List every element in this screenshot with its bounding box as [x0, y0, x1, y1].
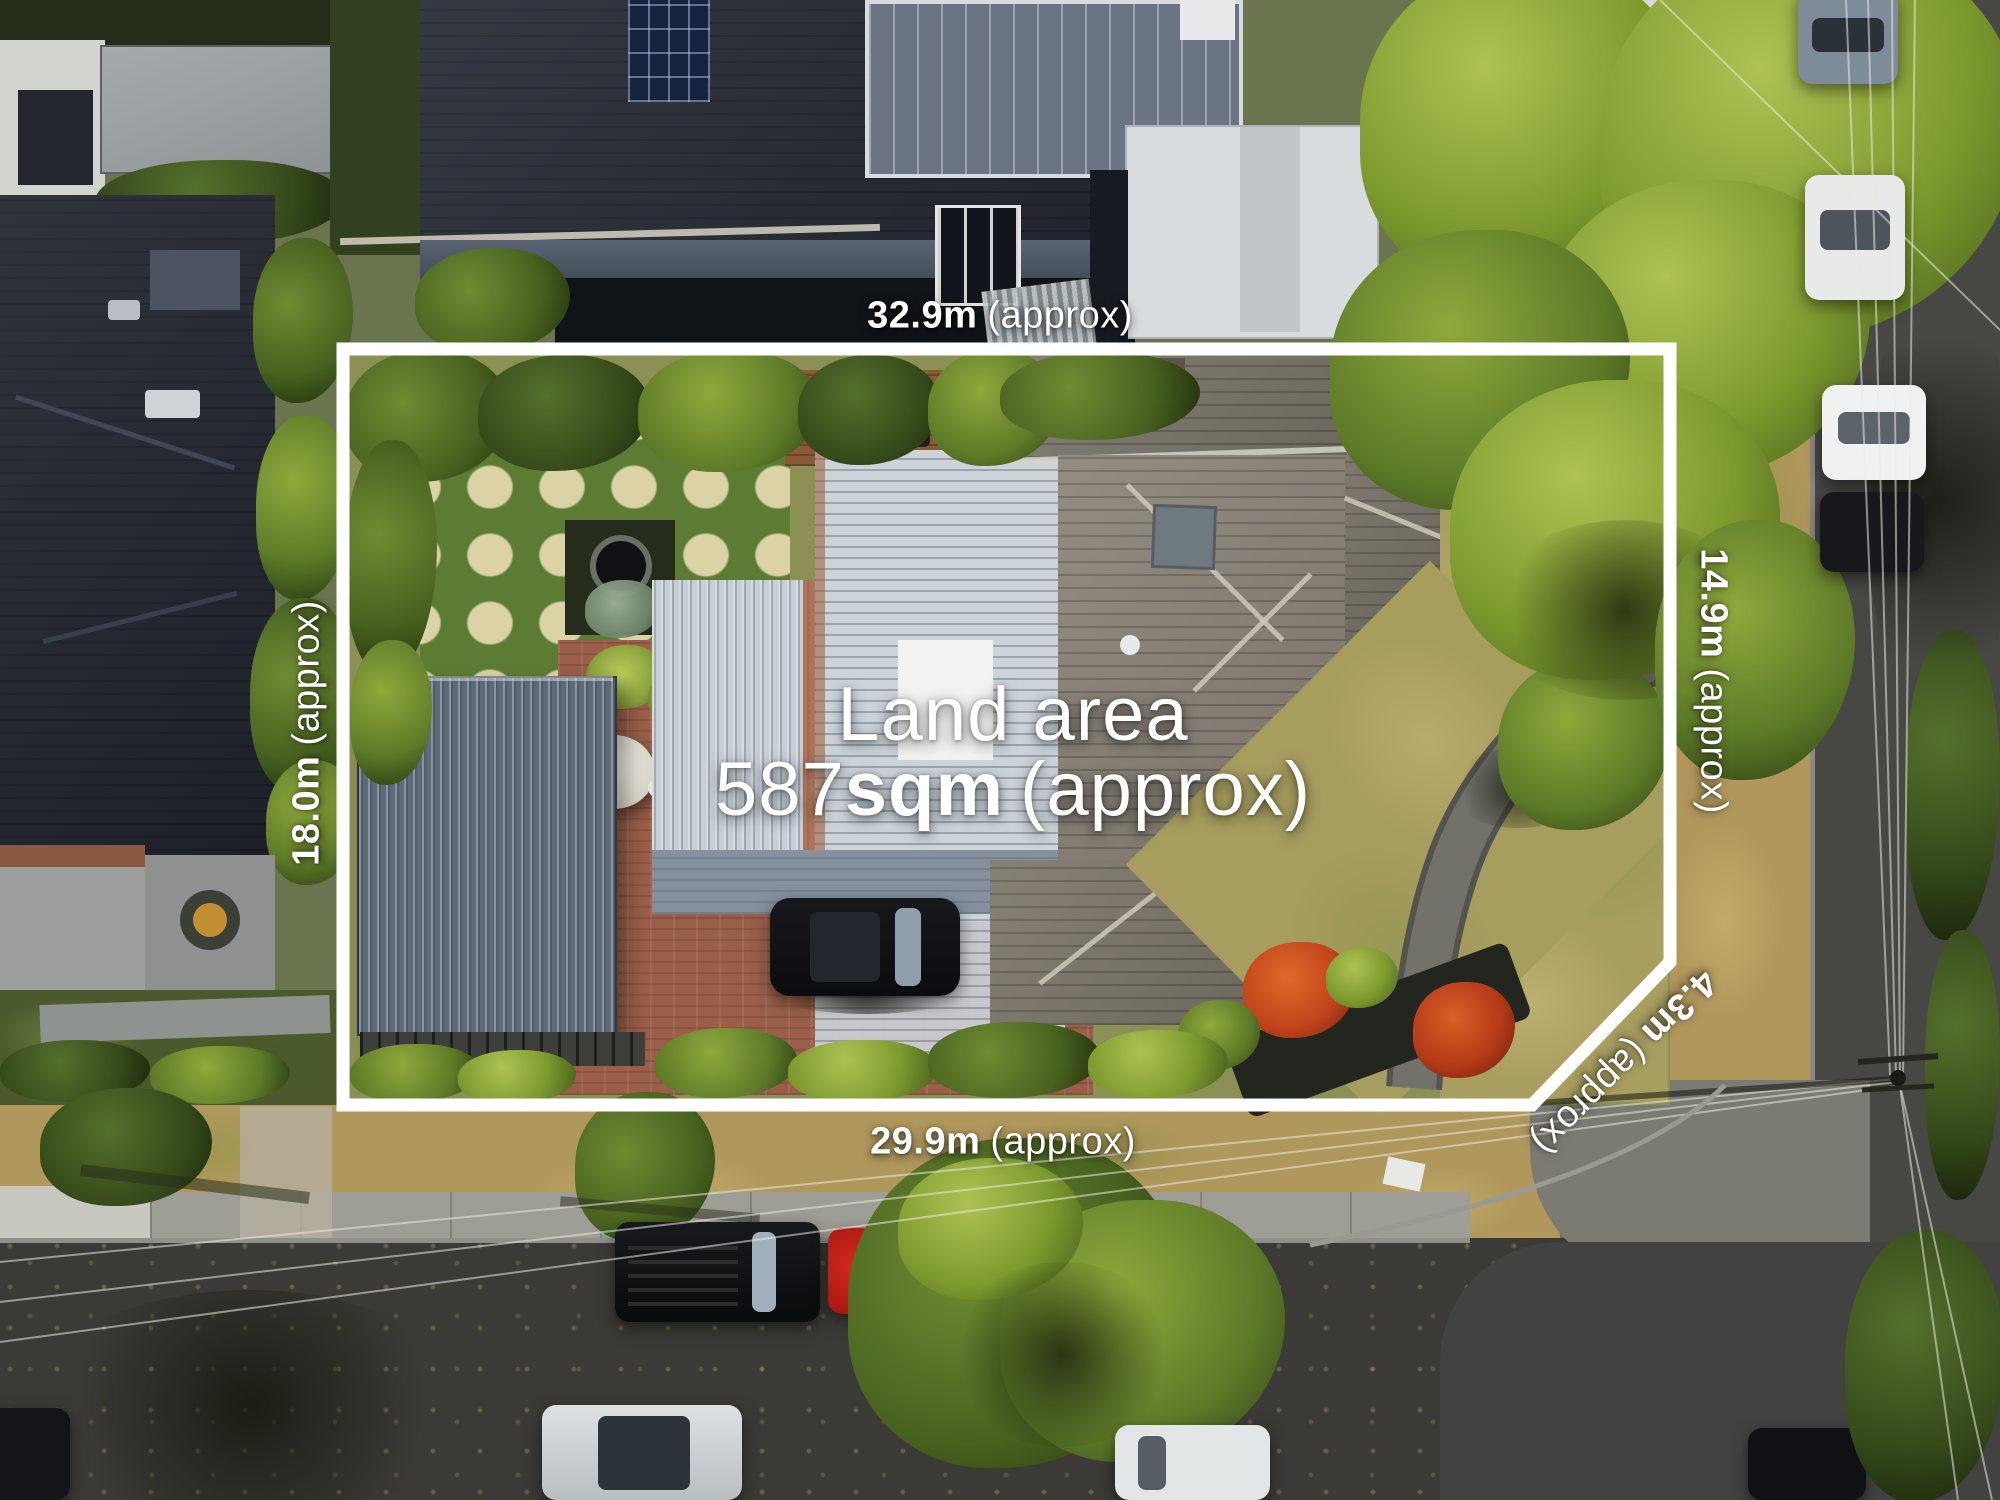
- dimension-label-left: 18.0m(approx): [286, 600, 329, 866]
- dimension-label-right: 14.9m(approx): [1692, 548, 1735, 814]
- dimension-label-bottom: 29.9m(approx): [870, 1121, 1136, 1164]
- land-area-label: Land area 587sqm(approx): [715, 677, 1311, 827]
- dimension-suffix: (approx): [990, 1121, 1136, 1163]
- dimension-suffix: (approx): [286, 600, 328, 746]
- land-area-line1: Land area: [715, 677, 1311, 752]
- dimension-value: 32.9m: [867, 295, 977, 337]
- dimension-value: 18.0m: [286, 756, 328, 866]
- dimension-label-top: 32.9m(approx): [867, 295, 1133, 338]
- aerial-photo: 32.9m(approx) 29.9m(approx) 18.0m(approx…: [0, 0, 2000, 1500]
- land-area-unit: sqm: [845, 747, 1004, 832]
- dimension-value: 14.9m: [1693, 548, 1735, 658]
- land-area-line2: 587sqm(approx): [715, 752, 1311, 827]
- land-area-value: 587: [715, 747, 845, 832]
- dimension-suffix: (approx): [1693, 668, 1735, 814]
- land-area-suffix: (approx): [1020, 747, 1311, 832]
- dimension-suffix: (approx): [987, 295, 1133, 337]
- dimension-value: 29.9m: [870, 1121, 980, 1163]
